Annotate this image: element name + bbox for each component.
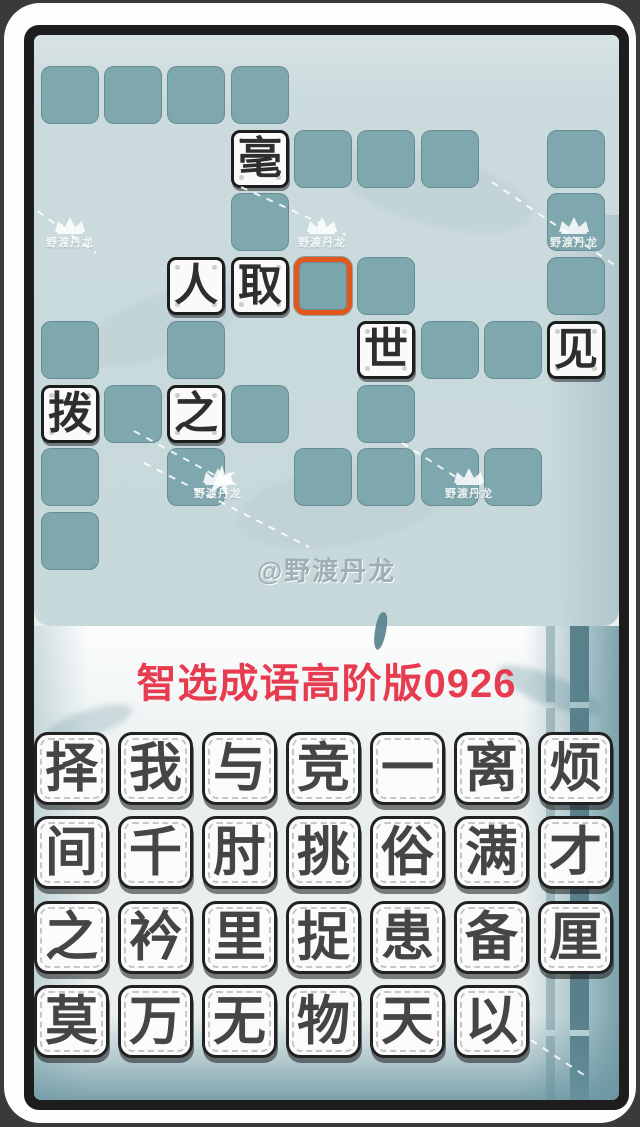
board-cell-empty-r3c8[interactable]	[547, 257, 605, 315]
board-cell-filled-r3c2[interactable]: 人	[167, 257, 225, 315]
board-cell-empty-r6c0[interactable]	[41, 448, 99, 506]
board-cell-filled-r5c2[interactable]: 之	[167, 385, 225, 443]
bank-tile-character: 才	[541, 819, 610, 886]
board-cell-empty-r4c0[interactable]	[41, 321, 99, 379]
bank-tile-character: 一	[373, 735, 442, 802]
board-cell-empty-r3c5[interactable]	[357, 257, 415, 315]
bank-tile-character: 我	[121, 735, 190, 802]
board-cell-empty-r5c5[interactable]	[357, 385, 415, 443]
bank-tile-一[interactable]: 一	[370, 732, 445, 805]
bank-tile-捉[interactable]: 捉	[286, 901, 361, 974]
bank-tile-character: 挑	[289, 819, 358, 886]
level-title: 智选成语高阶版0926	[34, 651, 619, 709]
board-cell-empty-r4c6[interactable]	[421, 321, 479, 379]
tile-character: 取	[234, 260, 286, 312]
bank-tile-character: 竞	[289, 735, 358, 802]
bank-tile-间[interactable]: 间	[34, 816, 109, 889]
bank-tile-character: 备	[457, 904, 526, 971]
bank-tile-character: 无	[205, 988, 274, 1055]
tile-character: 人	[170, 260, 222, 312]
bank-tile-character: 捉	[289, 904, 358, 971]
bank-tile-万[interactable]: 万	[118, 985, 193, 1058]
bank-tile-character: 离	[457, 735, 526, 802]
board-cell-empty-r0c2[interactable]	[167, 66, 225, 124]
screenshot-card: 智选成语高阶版0926 毫人取世见拨之 择我与竞一离烦间千肘挑俗满才之衿里捉患备…	[4, 3, 636, 1123]
bank-tile-挑[interactable]: 挑	[286, 816, 361, 889]
board-cell-empty-r6c5[interactable]	[357, 448, 415, 506]
bank-tile-肘[interactable]: 肘	[202, 816, 277, 889]
bank-tile-character: 择	[37, 735, 106, 802]
board-cell-empty-r6c6[interactable]	[421, 448, 479, 506]
board-cell-filled-r5c0[interactable]: 拨	[41, 385, 99, 443]
bank-tile-备[interactable]: 备	[454, 901, 529, 974]
board-cell-empty-r2c3[interactable]	[231, 193, 289, 251]
tile-character: 世	[360, 324, 412, 376]
bank-tile-character: 满	[457, 819, 526, 886]
bank-tile-满[interactable]: 满	[454, 816, 529, 889]
bank-tile-以[interactable]: 以	[454, 985, 529, 1058]
board-cell-empty-r4c7[interactable]	[484, 321, 542, 379]
bank-tile-character: 与	[205, 735, 274, 802]
bank-tile-俗[interactable]: 俗	[370, 816, 445, 889]
board-cell-empty-r6c7[interactable]	[484, 448, 542, 506]
bank-tile-character: 衿	[121, 904, 190, 971]
board-cell-empty-r0c0[interactable]	[41, 66, 99, 124]
bank-tile-烦[interactable]: 烦	[538, 732, 613, 805]
bank-tile-character: 万	[121, 988, 190, 1055]
bank-tile-千[interactable]: 千	[118, 816, 193, 889]
bank-tile-与[interactable]: 与	[202, 732, 277, 805]
tile-character: 毫	[234, 133, 286, 185]
board-cell-selected-r3c4[interactable]	[294, 257, 352, 315]
bank-tile-无[interactable]: 无	[202, 985, 277, 1058]
game-frame: 智选成语高阶版0926 毫人取世见拨之 择我与竞一离烦间千肘挑俗满才之衿里捉患备…	[24, 25, 629, 1110]
board-cell-empty-r2c8[interactable]	[547, 193, 605, 251]
bank-tile-天[interactable]: 天	[370, 985, 445, 1058]
board-cell-empty-r1c4[interactable]	[294, 130, 352, 188]
bank-tile-character: 烦	[541, 735, 610, 802]
bank-tile-character: 物	[289, 988, 358, 1055]
bank-tile-character: 患	[373, 904, 442, 971]
game-screen: 智选成语高阶版0926 毫人取世见拨之 择我与竞一离烦间千肘挑俗满才之衿里捉患备…	[34, 35, 619, 1100]
board-cell-empty-r1c6[interactable]	[421, 130, 479, 188]
board-cell-empty-r5c1[interactable]	[104, 385, 162, 443]
board-cell-empty-r0c3[interactable]	[231, 66, 289, 124]
bank-tile-character: 里	[205, 904, 274, 971]
bank-tile-衿[interactable]: 衿	[118, 901, 193, 974]
board-cell-empty-r0c1[interactable]	[104, 66, 162, 124]
bank-tile-character: 以	[457, 988, 526, 1055]
bank-tile-离[interactable]: 离	[454, 732, 529, 805]
bank-tile-character: 千	[121, 819, 190, 886]
bank-tile-character: 之	[37, 904, 106, 971]
board-cell-filled-r4c8[interactable]: 见	[547, 321, 605, 379]
board-cell-empty-r6c4[interactable]	[294, 448, 352, 506]
tile-character: 拨	[44, 388, 96, 440]
bank-tile-之[interactable]: 之	[34, 901, 109, 974]
board-cell-empty-r4c2[interactable]	[167, 321, 225, 379]
bank-tile-患[interactable]: 患	[370, 901, 445, 974]
board-cell-filled-r4c5[interactable]: 世	[357, 321, 415, 379]
bank-tile-character: 莫	[37, 988, 106, 1055]
bank-tile-物[interactable]: 物	[286, 985, 361, 1058]
bank-tile-character: 厘	[541, 904, 610, 971]
board-cell-empty-r1c5[interactable]	[357, 130, 415, 188]
bank-tile-我[interactable]: 我	[118, 732, 193, 805]
board-cell-filled-r1c3[interactable]: 毫	[231, 130, 289, 188]
tile-character: 之	[170, 388, 222, 440]
bank-tile-里[interactable]: 里	[202, 901, 277, 974]
board-cell-empty-r6c2[interactable]	[167, 448, 225, 506]
board-cell-empty-r1c8[interactable]	[547, 130, 605, 188]
tile-character: 见	[550, 324, 602, 376]
bank-tile-择[interactable]: 择	[34, 732, 109, 805]
board-cell-filled-r3c3[interactable]: 取	[231, 257, 289, 315]
bank-tile-竞[interactable]: 竞	[286, 732, 361, 805]
bank-tile-character: 俗	[373, 819, 442, 886]
bank-tile-才[interactable]: 才	[538, 816, 613, 889]
bank-tile-厘[interactable]: 厘	[538, 901, 613, 974]
bank-tile-character: 天	[373, 988, 442, 1055]
board-cell-empty-r7c0[interactable]	[41, 512, 99, 570]
bank-tile-character: 肘	[205, 819, 274, 886]
board-cell-empty-r5c3[interactable]	[231, 385, 289, 443]
bank-tile-character: 间	[37, 819, 106, 886]
bank-tile-莫[interactable]: 莫	[34, 985, 109, 1058]
